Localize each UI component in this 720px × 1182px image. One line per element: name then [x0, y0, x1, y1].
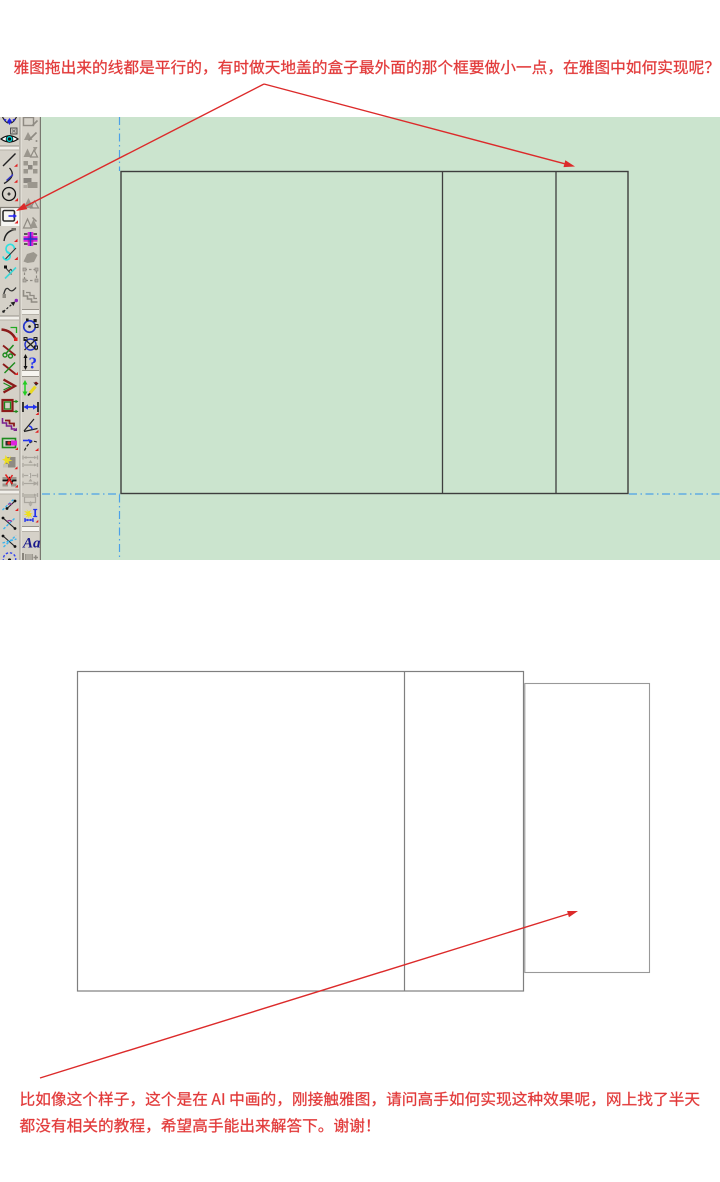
- svg-text:Aa: Aa: [22, 536, 41, 552]
- svg-text:?: ?: [29, 354, 38, 373]
